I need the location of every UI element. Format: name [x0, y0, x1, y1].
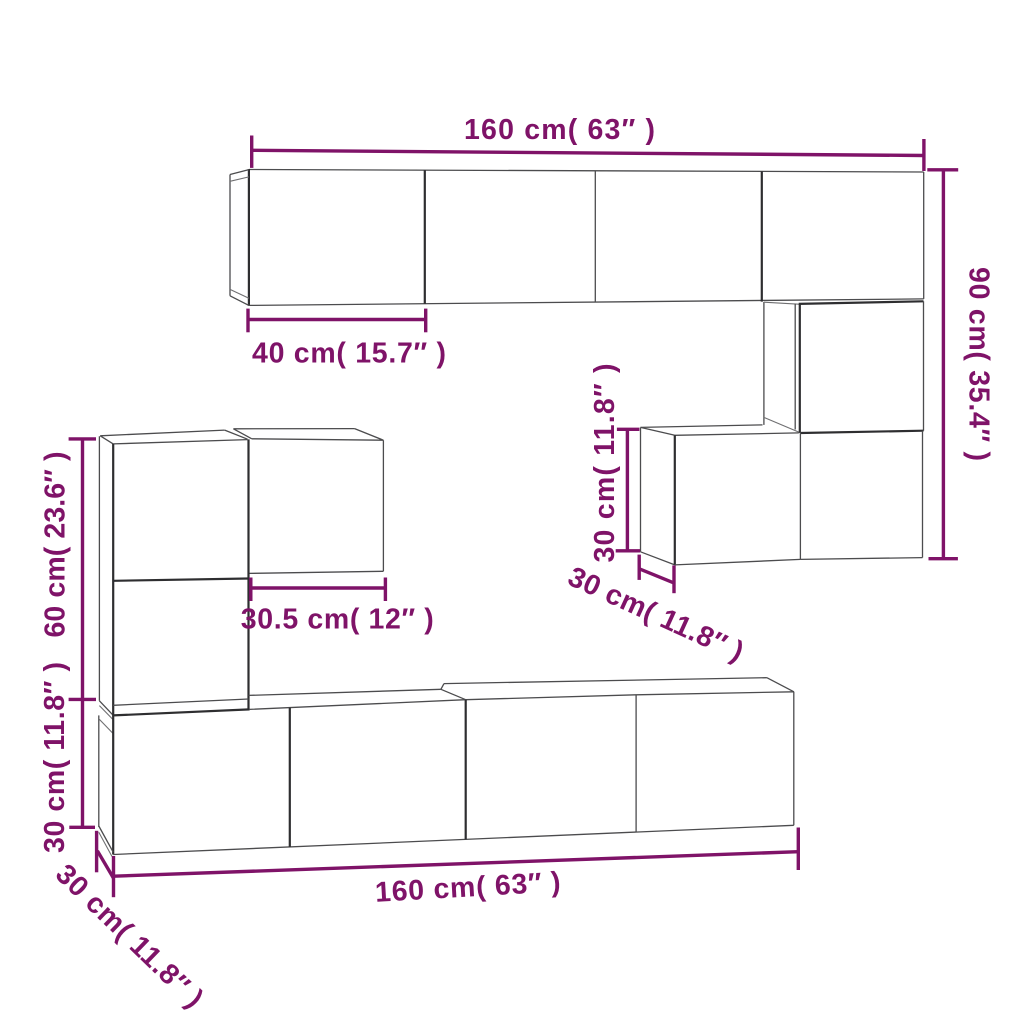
- svg-text:90 cm( 35.4″ ): 90 cm( 35.4″ ): [963, 267, 995, 461]
- svg-text:40 cm( 15.7″ ): 40 cm( 15.7″ ): [252, 338, 446, 370]
- svg-text:30.5 cm( 12″ ): 30.5 cm( 12″ ): [241, 603, 434, 635]
- svg-text:30 cm( 11.8″ ): 30 cm( 11.8″ ): [39, 662, 71, 853]
- svg-text:160 cm( 63″ ): 160 cm( 63″ ): [464, 114, 655, 146]
- svg-text:60 cm( 23.6″ ): 60 cm( 23.6″ ): [40, 452, 72, 638]
- svg-text:30 cm( 11.8″ ): 30 cm( 11.8″ ): [589, 364, 621, 563]
